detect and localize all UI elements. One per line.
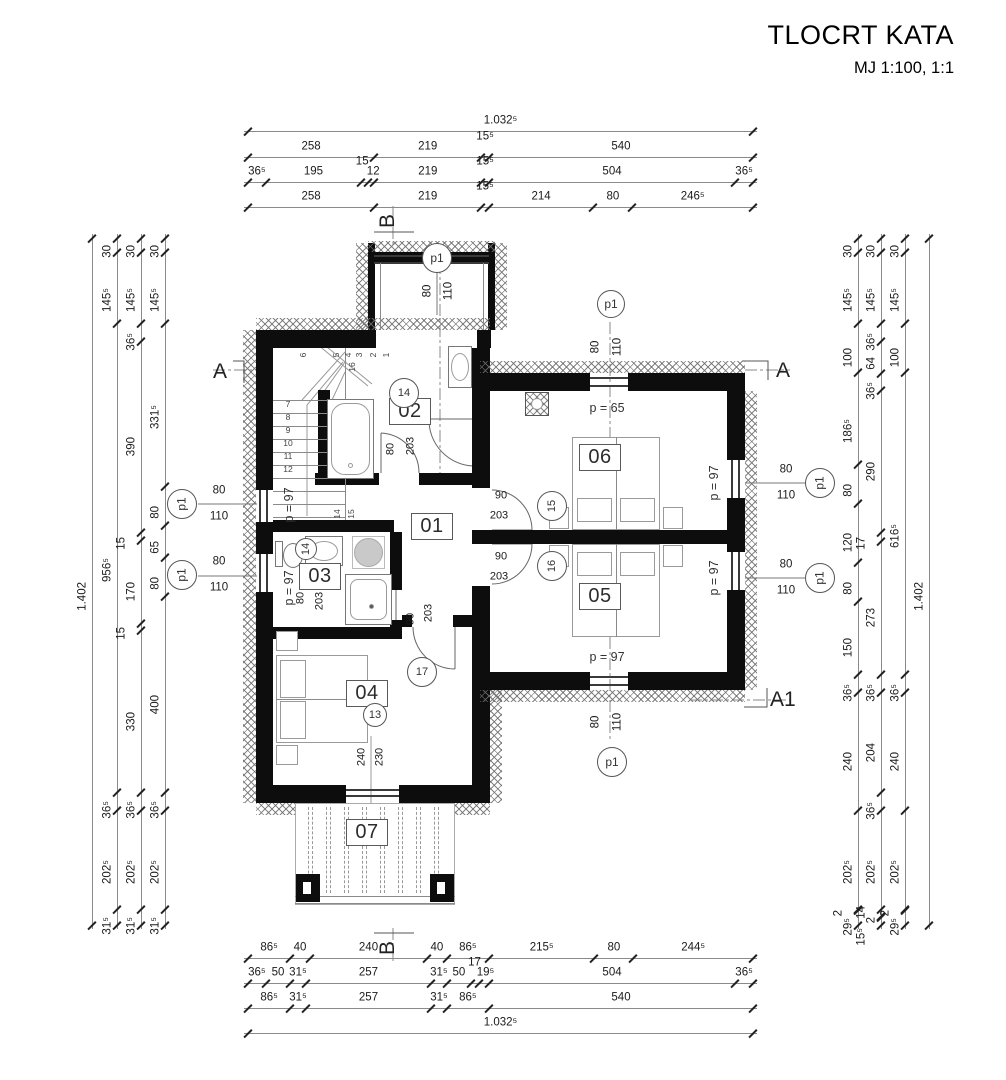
parapet-label-p65: p = 65 bbox=[589, 401, 624, 415]
wall bbox=[256, 330, 273, 490]
dim-right-detail-label: 30 bbox=[866, 245, 878, 258]
window-type-label: p1 bbox=[175, 497, 189, 510]
opening-marker-14b: 14 bbox=[295, 538, 317, 560]
parapet-label-p97-stairs: p = 97 bbox=[282, 487, 296, 522]
wall-hatch bbox=[480, 690, 745, 702]
wall-hatch bbox=[256, 318, 490, 330]
balcony-beam bbox=[398, 807, 403, 893]
dim-left-total-line bbox=[92, 234, 93, 929]
opening-marker-label: 16 bbox=[546, 560, 558, 572]
wall bbox=[472, 530, 490, 544]
balcony-door-size-label: 230 bbox=[375, 748, 386, 766]
door-02-size-label: 203 bbox=[406, 437, 417, 455]
dim-left-openings-label: 31⁵ bbox=[150, 917, 162, 935]
thin-line bbox=[483, 263, 484, 330]
dim-right-openings-label: 80 bbox=[843, 484, 855, 497]
dim-bottom-main-label: 257 bbox=[359, 993, 378, 1005]
dim-left-detail-label: 145⁵ bbox=[126, 288, 138, 312]
dim-right-detail-label: 2 bbox=[866, 917, 878, 923]
door-04-size-label: 203 bbox=[424, 604, 435, 622]
dim-left-openings-label: 400 bbox=[150, 695, 162, 714]
nightstand bbox=[276, 631, 298, 651]
dim-right-detail-label: 290 bbox=[866, 462, 878, 481]
dim-left-detail-label: 390 bbox=[126, 437, 138, 456]
opening-marker-label: 14 bbox=[300, 543, 312, 555]
dim-right-main-label: 202⁵ bbox=[890, 860, 902, 884]
bed-05-pillow bbox=[620, 552, 655, 576]
dim-right-main-label: 36⁵ bbox=[890, 684, 902, 702]
wall bbox=[256, 330, 376, 348]
window-type-label: p1 bbox=[813, 571, 827, 584]
window-size-label: 80 bbox=[780, 559, 793, 571]
bed-06-pillow bbox=[620, 498, 655, 522]
dim-bottom-main-label: 540 bbox=[611, 993, 630, 1005]
dim-right-openings-label: 2 bbox=[833, 910, 845, 916]
wall bbox=[256, 522, 273, 554]
nightstand bbox=[663, 545, 683, 567]
balcony-beam bbox=[416, 807, 421, 893]
dim-right-main-label: 240 bbox=[890, 752, 902, 771]
section-marker-a-left: A bbox=[213, 360, 227, 384]
dim-left-main-label: 30 bbox=[102, 245, 114, 258]
dim-right-detail-label: 64 bbox=[866, 357, 878, 370]
dim-bottom-openings-label: 40 bbox=[294, 943, 307, 955]
dim-bottom-total-line bbox=[244, 1033, 757, 1034]
stair-number: 14 bbox=[332, 509, 342, 518]
section-marker-a1: A1 bbox=[770, 688, 796, 712]
dim-right-detail-label: 15⁵ bbox=[856, 928, 868, 946]
dim-bottom-detail-line bbox=[244, 983, 757, 984]
window-glazing bbox=[590, 377, 628, 379]
opening-marker-label: 14 bbox=[398, 387, 410, 399]
window-type-label: p1 bbox=[175, 568, 189, 581]
wall bbox=[490, 530, 727, 544]
dim-top-detail-label: 195 bbox=[304, 167, 323, 179]
dim-left-total-label: 1.402 bbox=[77, 582, 89, 611]
wall bbox=[480, 672, 590, 690]
window-size-label: 80 bbox=[590, 341, 602, 354]
dim-top-openings-label: 246⁵ bbox=[681, 192, 705, 204]
door-02-size-label: 80 bbox=[386, 443, 397, 455]
dim-left-main-line bbox=[117, 234, 118, 929]
dim-left-detail-label: 36⁵ bbox=[126, 801, 138, 819]
stair-number: 7 bbox=[286, 399, 291, 409]
dim-left-openings-line bbox=[165, 234, 166, 929]
window-size-label: 110 bbox=[210, 582, 228, 594]
title-block: TLOCRT KATA MJ 1:100, 1:1 bbox=[767, 20, 954, 78]
wall bbox=[256, 785, 346, 803]
window-size-label: 110 bbox=[777, 490, 795, 502]
window-type-label: p1 bbox=[813, 476, 827, 489]
dim-right-openings-label: 186⁵ bbox=[843, 419, 855, 443]
stair-number: 1 bbox=[381, 353, 391, 358]
dim-top-detail-line bbox=[244, 182, 757, 183]
window-glazing bbox=[346, 789, 399, 791]
stair-number: 6 bbox=[298, 353, 308, 358]
dim-left-detail-label: 30 bbox=[126, 245, 138, 258]
opening-marker-14: 14 bbox=[389, 378, 419, 408]
dim-top-total-line bbox=[244, 131, 757, 132]
wall bbox=[628, 672, 745, 690]
window-type-marker: p1 bbox=[597, 290, 625, 318]
dim-right-openings-label: 150 bbox=[843, 638, 855, 657]
window-glazing bbox=[259, 490, 261, 522]
dim-right-main-label: 616⁵ bbox=[890, 524, 902, 548]
window-glazing bbox=[738, 460, 740, 498]
window-size-label: 80 bbox=[213, 556, 226, 568]
dim-top-main-line bbox=[244, 157, 757, 158]
dim-right-openings-line bbox=[858, 234, 859, 929]
drawing-title: TLOCRT KATA bbox=[767, 20, 954, 51]
dim-left-main-label: 36⁵ bbox=[102, 801, 114, 819]
dim-top-detail-label: 219 bbox=[418, 167, 437, 179]
dim-left-detail-label: 31⁵ bbox=[126, 917, 138, 935]
dim-bottom-detail-label: 50 bbox=[452, 968, 465, 980]
dim-right-main-line bbox=[905, 234, 906, 929]
section-marker-b-bottom: B bbox=[376, 941, 400, 955]
stair-number: 2 bbox=[368, 353, 378, 358]
dim-right-openings-label: 29⁵ bbox=[843, 918, 855, 936]
room-label-01: 01 bbox=[411, 513, 453, 540]
window-type-marker: p1 bbox=[805, 563, 835, 593]
dim-left-detail-label: 36⁵ bbox=[126, 333, 138, 351]
dim-top-main-label: 540 bbox=[611, 142, 630, 154]
nightstand bbox=[276, 745, 298, 765]
dim-bottom-detail-label: 31⁵ bbox=[289, 968, 307, 980]
dim-top-main-label: 15⁵ bbox=[476, 132, 494, 144]
duct-circle bbox=[354, 538, 383, 567]
dim-bottom-main-label: 31⁵ bbox=[430, 993, 448, 1005]
dim-bottom-openings-label: 86⁵ bbox=[459, 943, 477, 955]
dim-bottom-detail-label: 36⁵ bbox=[248, 968, 266, 980]
window-size-label: 80 bbox=[213, 485, 226, 497]
dim-bottom-openings-label: 40 bbox=[431, 943, 444, 955]
dim-right-openings-label: 120 bbox=[843, 533, 855, 552]
dim-bottom-detail-label: 31⁵ bbox=[430, 968, 448, 980]
window-glazing bbox=[266, 490, 268, 522]
dim-left-main-label: 31⁵ bbox=[102, 917, 114, 935]
window-size-label: 80 bbox=[422, 285, 434, 298]
window-size-label: 110 bbox=[210, 511, 228, 523]
stair-number: 12 bbox=[283, 464, 292, 474]
dim-right-openings-label: 100 bbox=[843, 348, 855, 367]
dim-bottom-main-line bbox=[244, 1008, 757, 1009]
window-glazing bbox=[266, 554, 268, 592]
dim-left-detail-label: 15 bbox=[116, 627, 128, 640]
dim-top-openings-line bbox=[244, 207, 757, 208]
parapet-label-p97-bath: p = 97 bbox=[282, 570, 296, 605]
nightstand bbox=[663, 507, 683, 529]
wall-hatch bbox=[745, 391, 757, 690]
dim-top-main-label: 219 bbox=[418, 142, 437, 154]
wall-hatch bbox=[495, 243, 507, 330]
window-glazing bbox=[590, 684, 628, 686]
parapet-label-p97-right-upper: p = 97 bbox=[707, 465, 721, 500]
dim-bottom-openings-label: 244⁵ bbox=[681, 943, 705, 955]
dim-left-openings-label: 145⁵ bbox=[150, 288, 162, 312]
opening-marker-16: 16 bbox=[537, 551, 567, 581]
stair-number: 11 bbox=[284, 451, 293, 461]
opening-marker-label: 13 bbox=[369, 709, 381, 721]
window-size-label: 110 bbox=[443, 282, 455, 300]
window-size-label: 110 bbox=[612, 338, 624, 356]
dim-right-detail-label: 36⁵ bbox=[866, 684, 878, 702]
dim-left-detail-label: 202⁵ bbox=[126, 860, 138, 884]
window-size-label: 110 bbox=[612, 713, 624, 731]
dim-top-detail-label: 504 bbox=[602, 167, 621, 179]
dim-right-detail-label: 36⁵ bbox=[866, 382, 878, 400]
wall bbox=[477, 330, 491, 348]
window-size-label: 80 bbox=[780, 464, 793, 476]
door-05-size-label: 90 bbox=[495, 552, 507, 563]
window-type-marker: p1 bbox=[597, 747, 627, 777]
window-glazing bbox=[259, 554, 261, 592]
dim-bottom-openings-label: 215⁵ bbox=[530, 943, 554, 955]
dim-left-openings-label: 202⁵ bbox=[150, 860, 162, 884]
dim-left-openings-label: 65 bbox=[150, 541, 162, 554]
window-glazing bbox=[731, 460, 733, 498]
wall bbox=[727, 391, 745, 460]
parapet-label-p97-right-lower: p = 97 bbox=[707, 560, 721, 595]
window-type-label: p1 bbox=[604, 297, 617, 311]
wall bbox=[628, 373, 745, 391]
window-size-label: 80 bbox=[590, 716, 602, 729]
dim-top-detail-label: 36⁵ bbox=[248, 167, 266, 179]
dim-bottom-openings-label: 240 bbox=[359, 943, 378, 955]
window-glazing bbox=[590, 385, 628, 387]
floor-plan-drawing: TLOCRT KATA MJ 1:100, 1:1 A A A1 B B 1.0… bbox=[0, 0, 1006, 1080]
dim-left-detail-label: 330 bbox=[126, 712, 138, 731]
dim-bottom-main-label: 86⁵ bbox=[260, 993, 278, 1005]
dim-right-openings-label: 80 bbox=[843, 582, 855, 595]
balcony-post-core bbox=[437, 882, 445, 894]
drawing-scale: MJ 1:100, 1:1 bbox=[767, 59, 954, 78]
dim-right-detail-label: 202⁵ bbox=[866, 860, 878, 884]
chimney-flue bbox=[531, 398, 543, 410]
door-03-size-label: 203 bbox=[315, 592, 326, 610]
dim-left-openings-label: 30 bbox=[150, 245, 162, 258]
room-label-03: 03 bbox=[299, 563, 341, 590]
dim-right-openings-label: 36⁵ bbox=[843, 684, 855, 702]
room-label-07: 07 bbox=[346, 819, 388, 846]
dim-left-detail-label: 15 bbox=[116, 537, 128, 550]
dim-top-openings-label: 258 bbox=[301, 192, 320, 204]
stair-number-break: 16 bbox=[347, 362, 357, 371]
shower-drain bbox=[369, 604, 374, 609]
wall-hatch bbox=[243, 330, 256, 803]
room-label-05: 05 bbox=[579, 583, 621, 610]
dim-top-openings-label: 219 bbox=[418, 192, 437, 204]
window-size-label: 110 bbox=[777, 585, 795, 597]
opening-marker-label: 15 bbox=[546, 500, 558, 512]
dim-right-total-label: 1.402 bbox=[914, 582, 926, 611]
dim-left-main-label: 202⁵ bbox=[102, 860, 114, 884]
dim-right-detail-label: 145⁵ bbox=[866, 288, 878, 312]
stair-number: 5 bbox=[331, 353, 341, 358]
dim-top-main-label: 258 bbox=[302, 142, 321, 154]
window-type-marker: p1 bbox=[805, 468, 835, 498]
wall bbox=[727, 498, 745, 552]
wall-hatch bbox=[490, 690, 502, 803]
dim-top-detail-label: 12 bbox=[367, 167, 380, 179]
window-glazing bbox=[738, 552, 740, 590]
toilet-tank bbox=[275, 541, 283, 567]
balcony-beam bbox=[326, 807, 331, 893]
bed-04-pillow bbox=[280, 701, 306, 739]
thin-line bbox=[380, 263, 381, 330]
stair-number: 4 bbox=[343, 353, 353, 358]
dim-right-main-label: 30 bbox=[890, 245, 902, 258]
dim-bottom-detail-label: 504 bbox=[602, 968, 621, 980]
dim-right-main-label: 145⁵ bbox=[890, 288, 902, 312]
parapet-label-p97-bottom: p = 97 bbox=[589, 650, 624, 664]
dim-bottom-detail-label: 36⁵ bbox=[735, 968, 753, 980]
stair-number: 9 bbox=[286, 425, 291, 435]
window-glazing bbox=[346, 795, 399, 797]
stair-number: 3 bbox=[354, 353, 364, 358]
door-03-size-label: 80 bbox=[296, 592, 307, 604]
dim-right-openings-label: 145⁵ bbox=[843, 288, 855, 312]
dim-bottom-detail-label: 50 bbox=[272, 968, 285, 980]
dim-right-main-label: 29⁵ bbox=[890, 918, 902, 936]
dim-top-openings-label: 15⁵ bbox=[476, 182, 494, 194]
wall bbox=[256, 592, 273, 803]
bathtub-drain bbox=[348, 463, 353, 468]
dim-bottom-detail-label: 19⁵ bbox=[477, 968, 495, 980]
dim-bottom-main-label: 31⁵ bbox=[289, 993, 307, 1005]
dim-top-total-label: 1.032⁵ bbox=[484, 116, 518, 128]
window-type-marker: p1 bbox=[167, 560, 197, 590]
dim-top-openings-label: 80 bbox=[607, 192, 620, 204]
dim-bottom-detail-label: 257 bbox=[359, 968, 378, 980]
dim-left-openings-label: 331⁵ bbox=[150, 405, 162, 429]
dim-top-detail-label: 36⁵ bbox=[735, 167, 753, 179]
opening-marker-13: 13 bbox=[363, 703, 387, 727]
wall bbox=[453, 615, 472, 627]
shower-tray-inner bbox=[350, 579, 387, 620]
window-type-label: p1 bbox=[605, 755, 618, 769]
dim-left-openings-label: 36⁵ bbox=[150, 801, 162, 819]
dim-bottom-total-label: 1.032⁵ bbox=[484, 1018, 518, 1030]
door-06-size-label: 90 bbox=[495, 491, 507, 502]
dim-right-openings-label: 30 bbox=[843, 245, 855, 258]
dim-right-detail-label: 17 bbox=[856, 537, 868, 550]
window-glazing bbox=[731, 552, 733, 590]
balcony-door-size-label: 240 bbox=[357, 748, 368, 766]
balcony-rail bbox=[295, 903, 455, 904]
dim-right-detail-label: 36⁵ bbox=[866, 333, 878, 351]
dim-left-openings-label: 80 bbox=[150, 577, 162, 590]
stair-number: 15 bbox=[346, 509, 356, 518]
section-marker-a-right: A bbox=[776, 359, 790, 383]
section-marker-b-top: B bbox=[376, 214, 400, 228]
door-05-size-label: 203 bbox=[490, 572, 508, 583]
wall bbox=[472, 586, 490, 672]
dim-right-openings-label: 202⁵ bbox=[843, 860, 855, 884]
window-type-marker: p1 bbox=[167, 489, 197, 519]
dim-right-main-label: 100 bbox=[890, 348, 902, 367]
dim-bottom-openings-line bbox=[244, 958, 757, 959]
stair-number: 8 bbox=[286, 412, 291, 422]
wall-hatch bbox=[480, 361, 745, 373]
washbasin-bowl bbox=[451, 353, 469, 381]
wall bbox=[419, 473, 472, 485]
dim-top-detail-label: 15⁵ bbox=[476, 157, 494, 169]
bed-05-pillow bbox=[577, 552, 612, 576]
dim-right-detail-label: 204 bbox=[866, 743, 878, 762]
opening-marker-15: 15 bbox=[537, 491, 567, 521]
stair-number: 10 bbox=[283, 438, 292, 448]
dim-bottom-openings-label: 80 bbox=[608, 943, 621, 955]
dim-left-openings-label: 80 bbox=[150, 506, 162, 519]
balcony-post-core bbox=[303, 882, 311, 894]
window-glazing bbox=[590, 676, 628, 678]
dim-top-openings-label: 214 bbox=[531, 192, 550, 204]
dim-right-detail-label: 36⁵ bbox=[866, 802, 878, 820]
room-label-04: 04 bbox=[346, 680, 388, 707]
room-label-06: 06 bbox=[579, 444, 621, 471]
door-04-size-label: 90 bbox=[406, 613, 417, 625]
dim-right-detail-label: 273 bbox=[866, 608, 878, 627]
dim-left-detail-label: 170 bbox=[126, 582, 138, 601]
dim-left-main-label: 145⁵ bbox=[102, 288, 114, 312]
dim-right-openings-label: 240 bbox=[843, 752, 855, 771]
dim-right-total-line bbox=[929, 234, 930, 929]
dim-bottom-main-label: 86⁵ bbox=[459, 993, 477, 1005]
dim-bottom-openings-label: 86⁵ bbox=[260, 943, 278, 955]
opening-marker-label: 17 bbox=[416, 666, 428, 678]
bed-06-pillow bbox=[577, 498, 612, 522]
window-type-marker: p1 bbox=[422, 243, 452, 273]
bed-04-pillow bbox=[280, 660, 306, 698]
window-type-label: p1 bbox=[430, 251, 443, 265]
dim-left-main-label: 956⁵ bbox=[102, 558, 114, 582]
dim-right-main-label: 2 bbox=[880, 910, 892, 916]
wall bbox=[480, 373, 590, 391]
wall-hatch bbox=[356, 243, 368, 330]
door-06-size-label: 203 bbox=[490, 511, 508, 522]
opening-marker-17: 17 bbox=[407, 657, 437, 687]
